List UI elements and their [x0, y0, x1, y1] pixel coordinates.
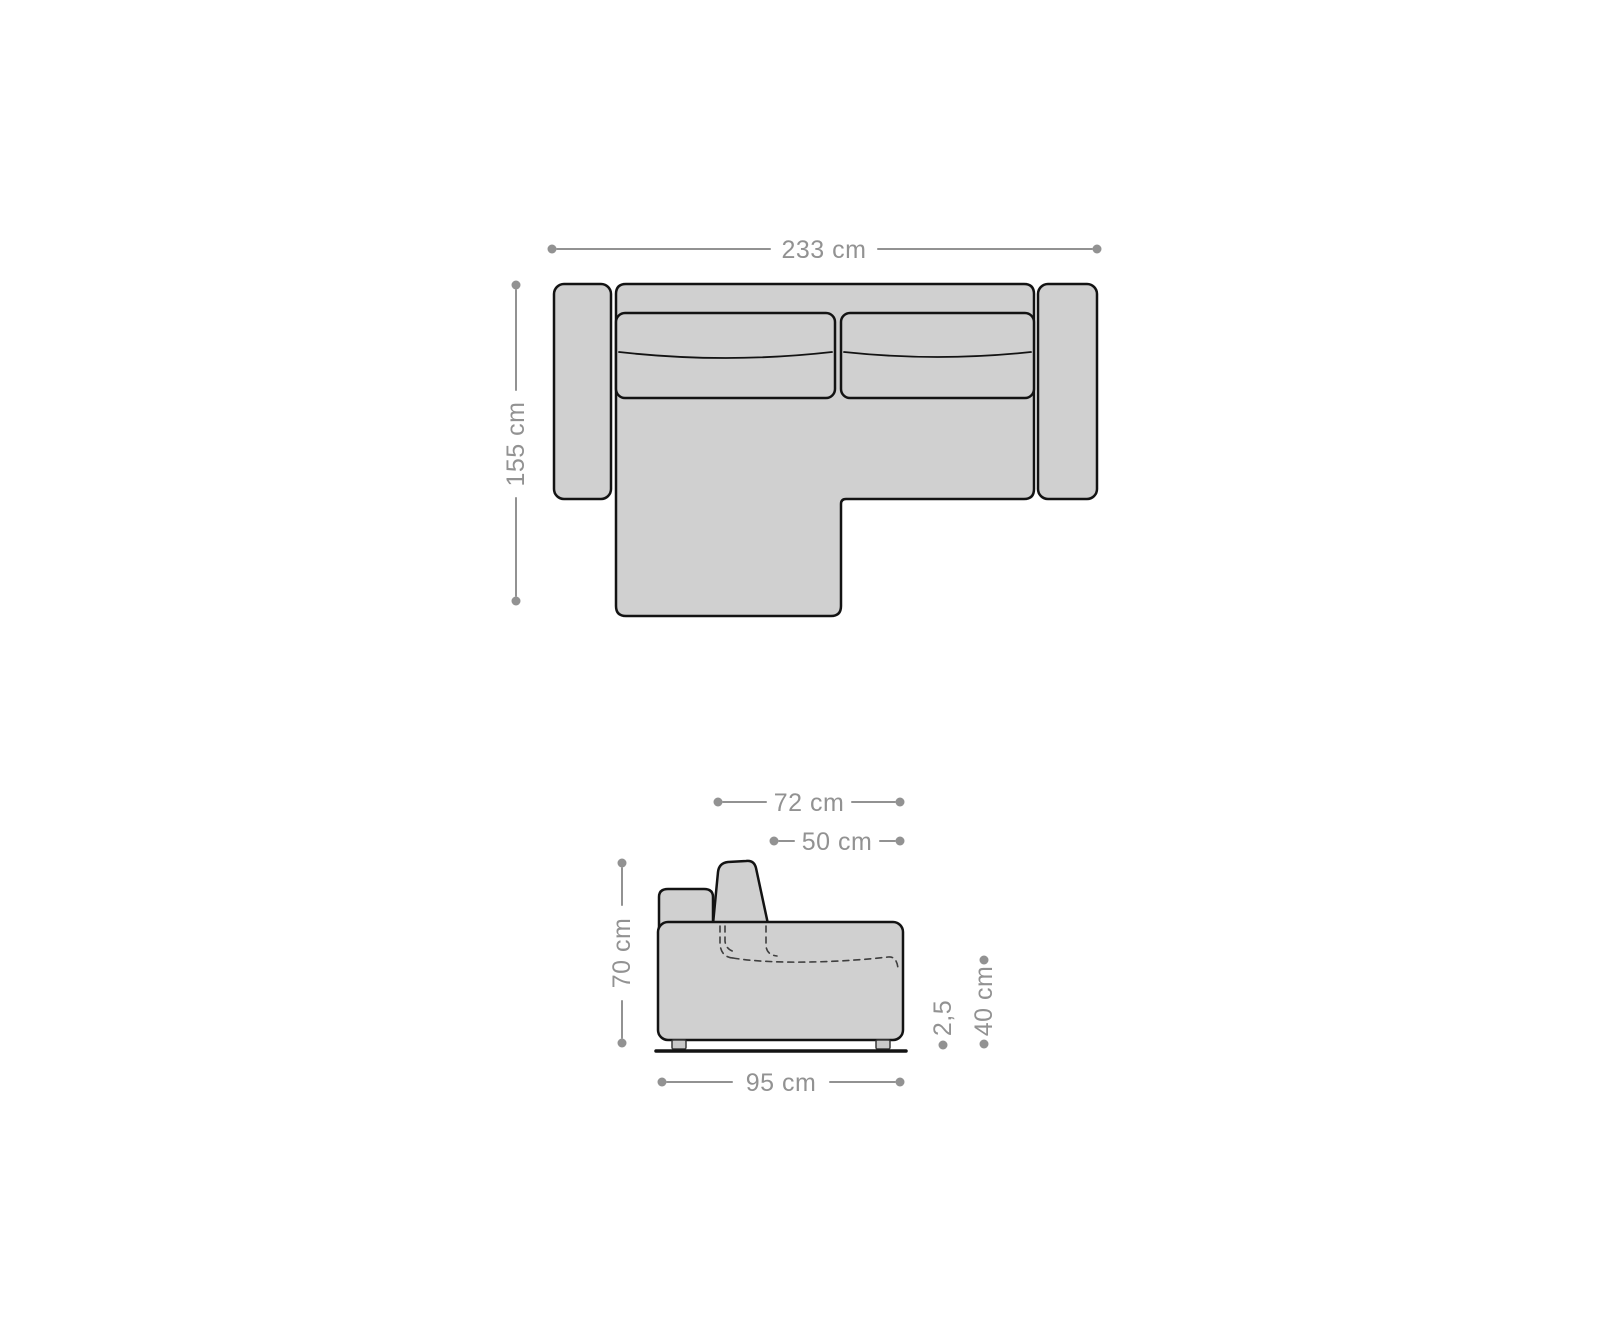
- diagram-svg: 233 cm 155 cm: [0, 0, 1600, 1333]
- seat-depth-label: 50 cm: [802, 828, 873, 856]
- dimension-dot: [770, 837, 779, 846]
- sofa-dimension-diagram: 233 cm 155 cm: [0, 0, 1600, 1333]
- backrest-cushion-shape: [713, 861, 768, 924]
- dimension-dot: [714, 798, 723, 807]
- dimension-dot: [658, 1078, 667, 1087]
- side-view: 72 cm 50 cm 70 cm: [608, 789, 998, 1097]
- top-right-armrest-shape: [1038, 284, 1097, 499]
- dimension-dot: [939, 1041, 948, 1050]
- back-height-dimension: 70 cm: [608, 859, 636, 1048]
- dimension-dot: [896, 837, 905, 846]
- dimension-dot: [896, 1078, 905, 1087]
- top-depth-label: 155 cm: [502, 402, 530, 487]
- top-left-armrest-shape: [554, 284, 611, 499]
- back-height-label: 70 cm: [608, 918, 636, 989]
- left-foot-shape: [672, 1040, 686, 1049]
- total-depth-label: 95 cm: [746, 1069, 817, 1097]
- dimension-dot: [1093, 245, 1102, 254]
- dimension-dot: [896, 798, 905, 807]
- dimension-dot: [512, 281, 521, 290]
- right-seat-cushion-shape: [841, 313, 1034, 398]
- dimension-dot: [980, 1040, 989, 1049]
- seat-depth-dimension: 50 cm: [770, 828, 905, 856]
- cushion-depth-dimension: 72 cm: [714, 789, 905, 817]
- top-view: 233 cm 155 cm: [502, 236, 1102, 616]
- right-foot-shape: [876, 1040, 890, 1049]
- foot-height-dimension: 2,5: [929, 1000, 957, 1050]
- foot-height-label: 2,5: [929, 1000, 957, 1036]
- top-width-label: 233 cm: [782, 236, 867, 264]
- top-depth-dimension: 155 cm: [502, 281, 530, 606]
- dimension-dot: [980, 956, 989, 965]
- dimension-dot: [548, 245, 557, 254]
- total-depth-dimension: 95 cm: [658, 1069, 905, 1097]
- dimension-dot: [618, 859, 627, 868]
- seat-height-label: 40 cm: [970, 966, 998, 1037]
- side-body-shape: [658, 922, 903, 1040]
- seat-height-dimension: 40 cm: [970, 956, 998, 1049]
- dimension-dot: [512, 597, 521, 606]
- cushion-depth-label: 72 cm: [774, 789, 845, 817]
- dimension-dot: [618, 1039, 627, 1048]
- top-width-dimension: 233 cm: [548, 236, 1102, 264]
